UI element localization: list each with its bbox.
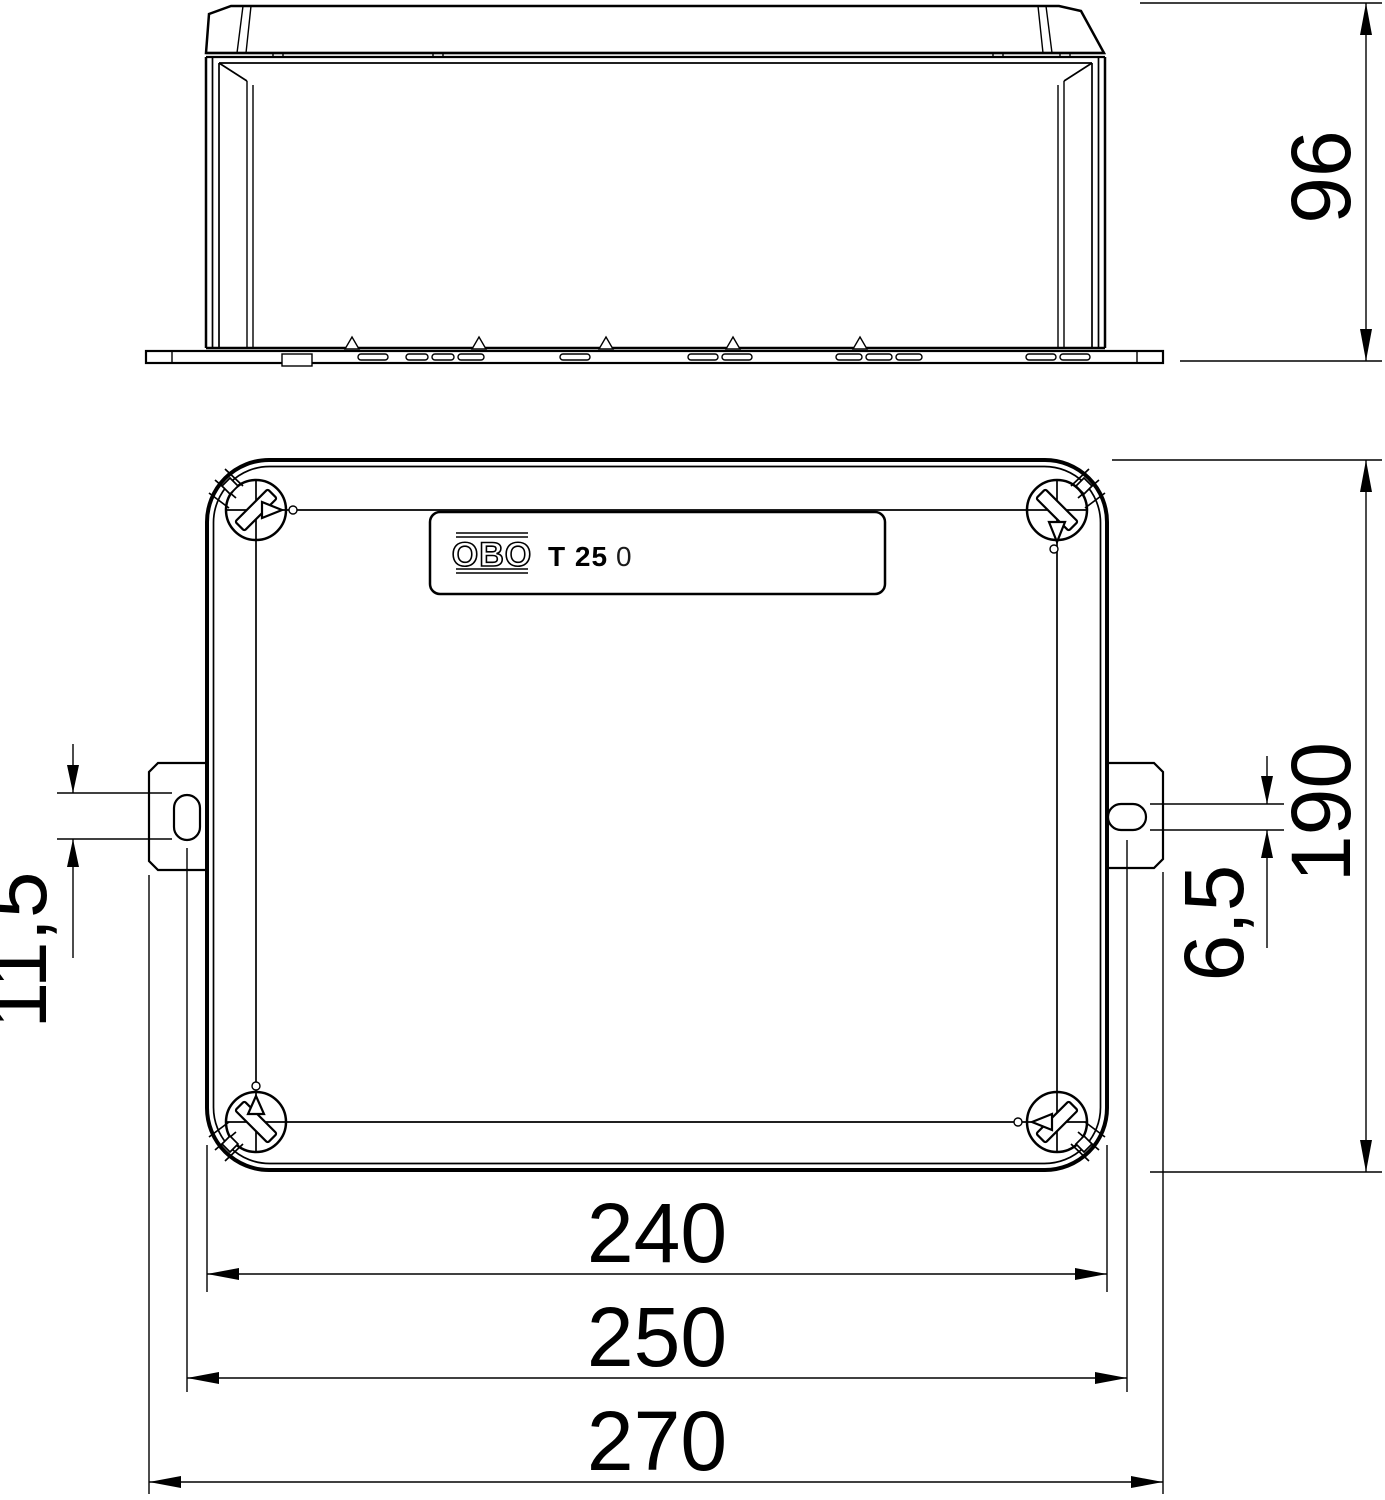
lid-outline bbox=[206, 6, 1104, 53]
dimension-slot-width-text: 6,5 bbox=[1167, 865, 1261, 982]
dimension-drawing: OBO T 25 0 bbox=[0, 0, 1385, 1500]
body-outline bbox=[206, 57, 1105, 348]
dimension-body-width-text: 240 bbox=[587, 1186, 727, 1280]
dimension-slot-width-6-5: 6,5 bbox=[1150, 756, 1284, 981]
side-elevation-view bbox=[146, 6, 1163, 366]
right-tab-slot bbox=[1108, 804, 1146, 830]
dimension-slot-length-11-5: 11,5 bbox=[0, 744, 172, 1029]
dimension-height-text: 96 bbox=[1274, 130, 1368, 223]
technical-drawing-page: OBO T 25 0 bbox=[0, 0, 1385, 1500]
dimension-overall-width-text: 270 bbox=[587, 1394, 727, 1488]
dimension-depth-text: 190 bbox=[1274, 742, 1368, 882]
obo-logo: OBO bbox=[452, 536, 532, 574]
product-label: OBO T 25 0 bbox=[430, 512, 885, 594]
dimension-fixing-centres-text: 250 bbox=[587, 1290, 727, 1384]
left-tab-slot bbox=[174, 795, 200, 840]
plan-view: OBO T 25 0 bbox=[149, 460, 1163, 1170]
dimension-height-96: 96 bbox=[1140, 3, 1382, 361]
model-suffix-text: 0 bbox=[616, 541, 632, 572]
model-text: T 25 bbox=[548, 541, 608, 572]
dimension-slot-length-text: 11,5 bbox=[0, 871, 64, 1028]
